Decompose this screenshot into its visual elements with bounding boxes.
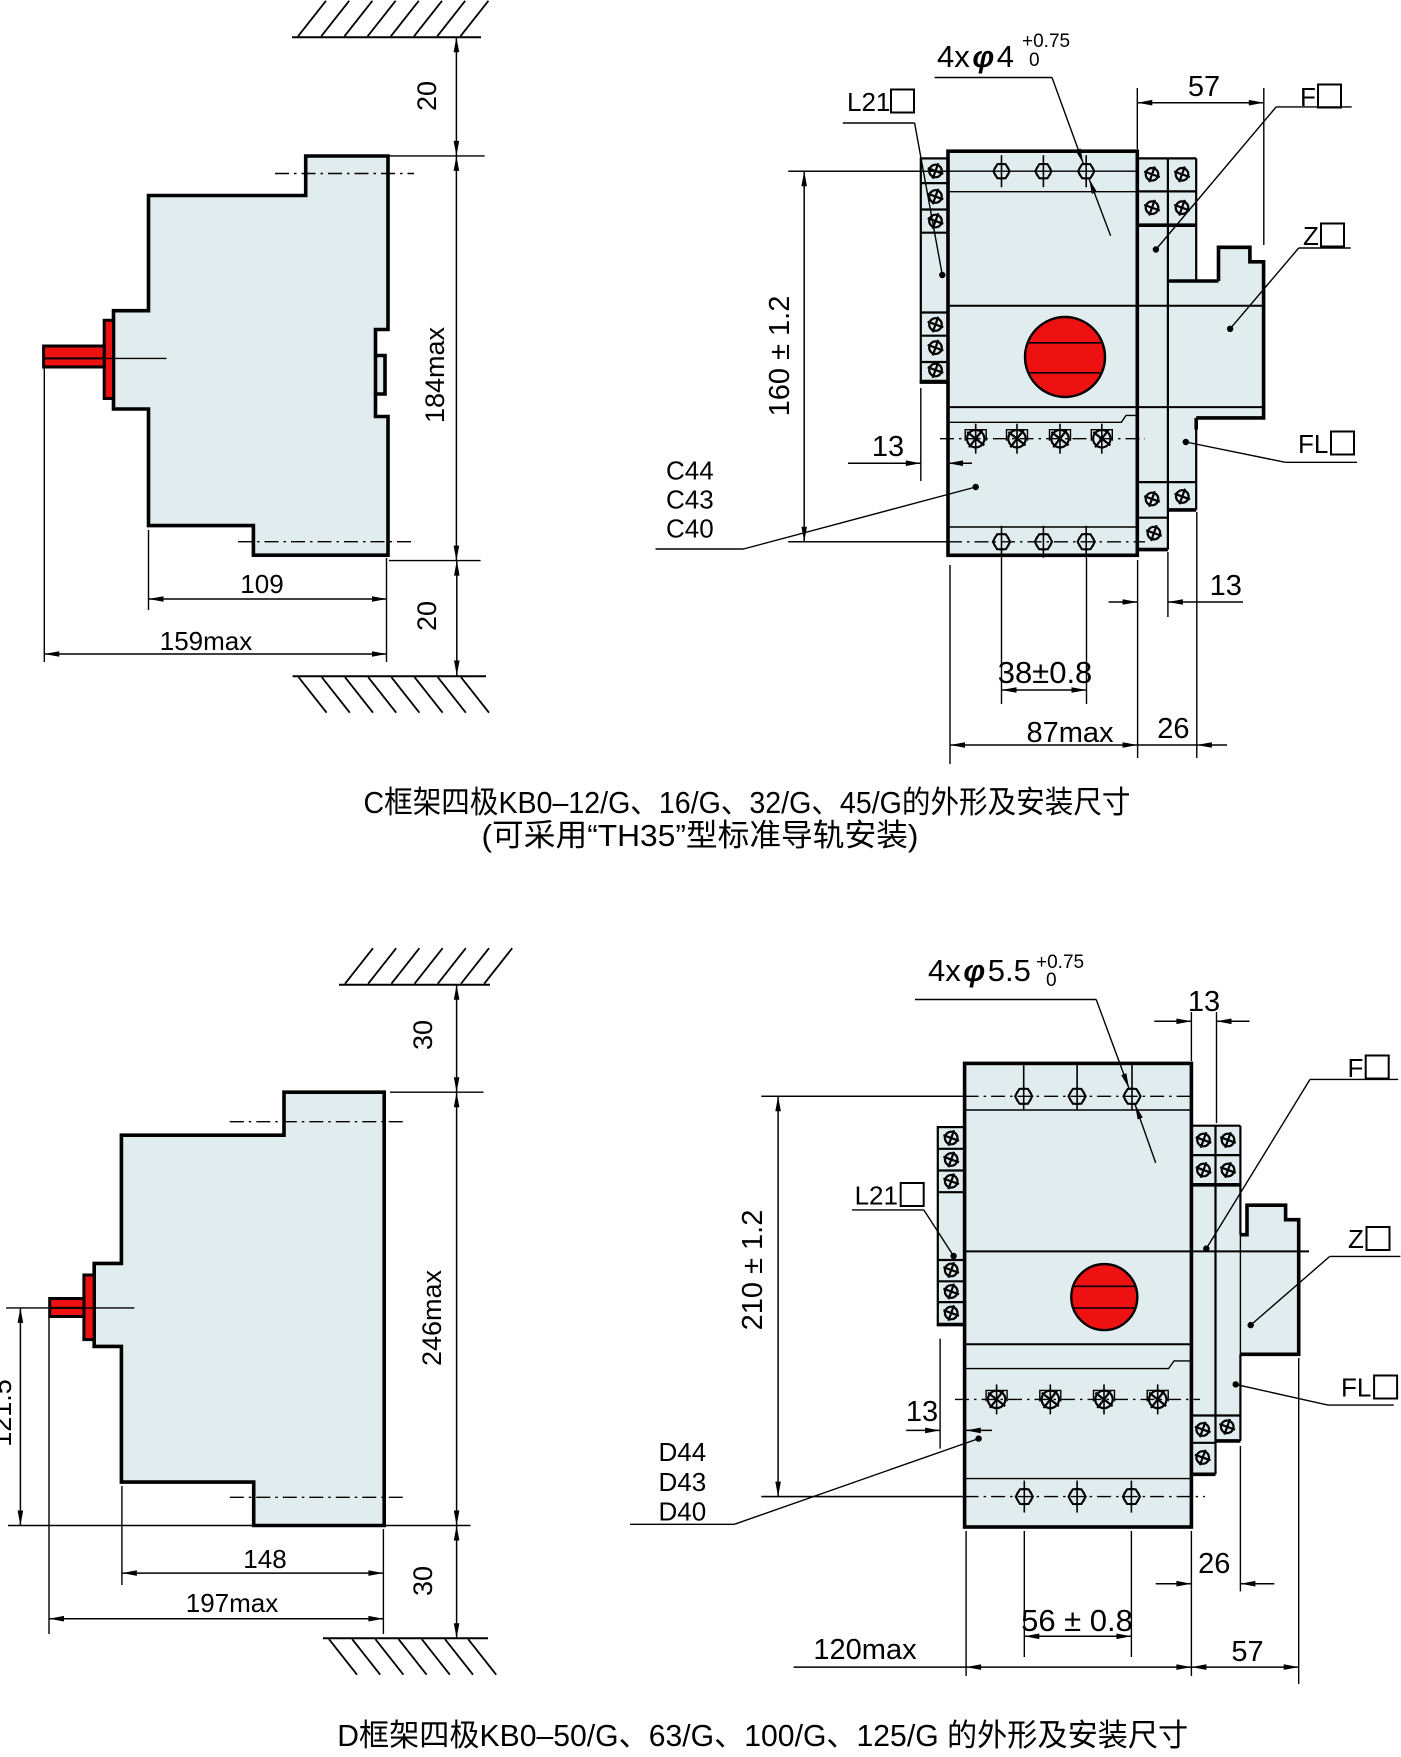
svg-text:Z: Z	[1303, 221, 1319, 251]
svg-text:+0.75: +0.75	[1036, 952, 1084, 973]
svg-text:57: 57	[1188, 71, 1220, 103]
svg-text:20: 20	[412, 81, 442, 111]
svg-text:26: 26	[1157, 713, 1189, 745]
svg-text:D43: D43	[659, 1467, 707, 1497]
svg-text:C44: C44	[666, 456, 714, 486]
svg-text:L21: L21	[847, 87, 890, 117]
svg-text:+0.75: +0.75	[1022, 31, 1070, 52]
svg-text:D44: D44	[659, 1437, 707, 1467]
svg-text:197max: 197max	[186, 1588, 279, 1618]
svg-text:121.5: 121.5	[0, 1379, 17, 1447]
svg-text:FL: FL	[1341, 1373, 1371, 1403]
svg-text:0: 0	[1029, 50, 1040, 71]
svg-text:57: 57	[1231, 1636, 1263, 1668]
svg-text:13: 13	[872, 431, 904, 463]
svg-text:D40: D40	[659, 1497, 707, 1527]
svg-text:4x φ 5.5: 4x φ 5.5	[928, 953, 1031, 988]
svg-text:13: 13	[906, 1396, 938, 1428]
svg-text:D框架四极KB0–50/G、63/G、100/G、125/G: D框架四极KB0–50/G、63/G、100/G、125/G 的外形及安装尺寸	[337, 1718, 1188, 1752]
svg-text:120max: 120max	[813, 1634, 917, 1666]
svg-text:109: 109	[240, 569, 283, 599]
svg-text:4x φ 4: 4x φ 4	[937, 39, 1014, 74]
svg-text:210 ± 1.2: 210 ± 1.2	[737, 1210, 769, 1331]
svg-text:FL: FL	[1298, 429, 1328, 459]
svg-text:F: F	[1348, 1053, 1364, 1083]
svg-text:13: 13	[1188, 986, 1220, 1018]
svg-text:13: 13	[1210, 570, 1242, 602]
svg-text:30: 30	[408, 1020, 438, 1050]
svg-text:148: 148	[243, 1544, 286, 1574]
svg-text:20: 20	[412, 601, 442, 631]
svg-text:Z: Z	[1348, 1224, 1364, 1254]
svg-text:L21: L21	[855, 1180, 898, 1210]
svg-text:26: 26	[1198, 1548, 1230, 1580]
svg-text:30: 30	[408, 1566, 438, 1596]
svg-text:(可采用“TH35”型标准导轨安装): (可采用“TH35”型标准导轨安装)	[482, 818, 919, 853]
svg-text:160 ± 1.2: 160 ± 1.2	[764, 296, 796, 417]
svg-text:38±0.8: 38±0.8	[998, 655, 1093, 690]
svg-text:C43: C43	[666, 485, 714, 515]
svg-text:C40: C40	[666, 514, 714, 544]
svg-text:C框架四极KB0–12/G、16/G、32/G、45/G的外: C框架四极KB0–12/G、16/G、32/G、45/G的外形及安装尺寸	[364, 785, 1131, 820]
svg-text:87max: 87max	[1026, 717, 1114, 749]
svg-text:159max: 159max	[160, 626, 253, 656]
svg-text:56 ± 0.8: 56 ± 0.8	[1021, 1603, 1133, 1638]
svg-text:184max: 184max	[420, 326, 450, 423]
svg-text:246max: 246max	[417, 1269, 447, 1366]
svg-text:0: 0	[1046, 970, 1057, 991]
